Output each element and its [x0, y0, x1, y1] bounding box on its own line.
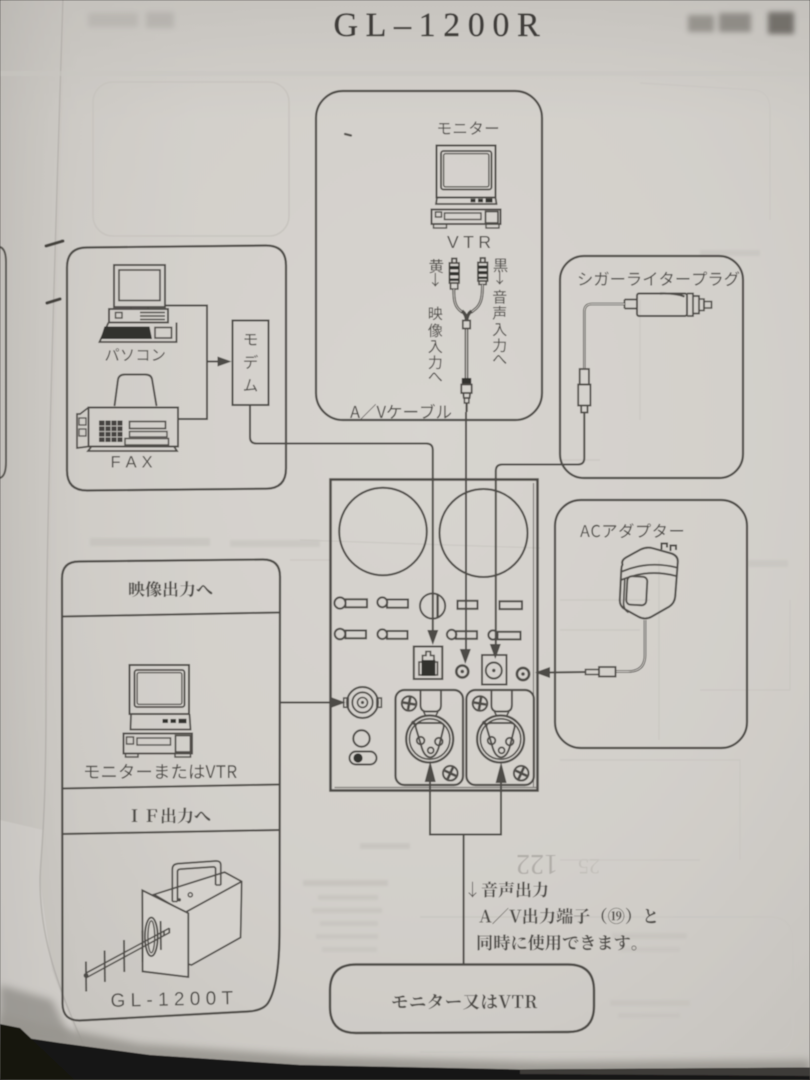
svg-text:122: 122	[516, 848, 558, 879]
svg-text:25: 25	[578, 854, 600, 879]
